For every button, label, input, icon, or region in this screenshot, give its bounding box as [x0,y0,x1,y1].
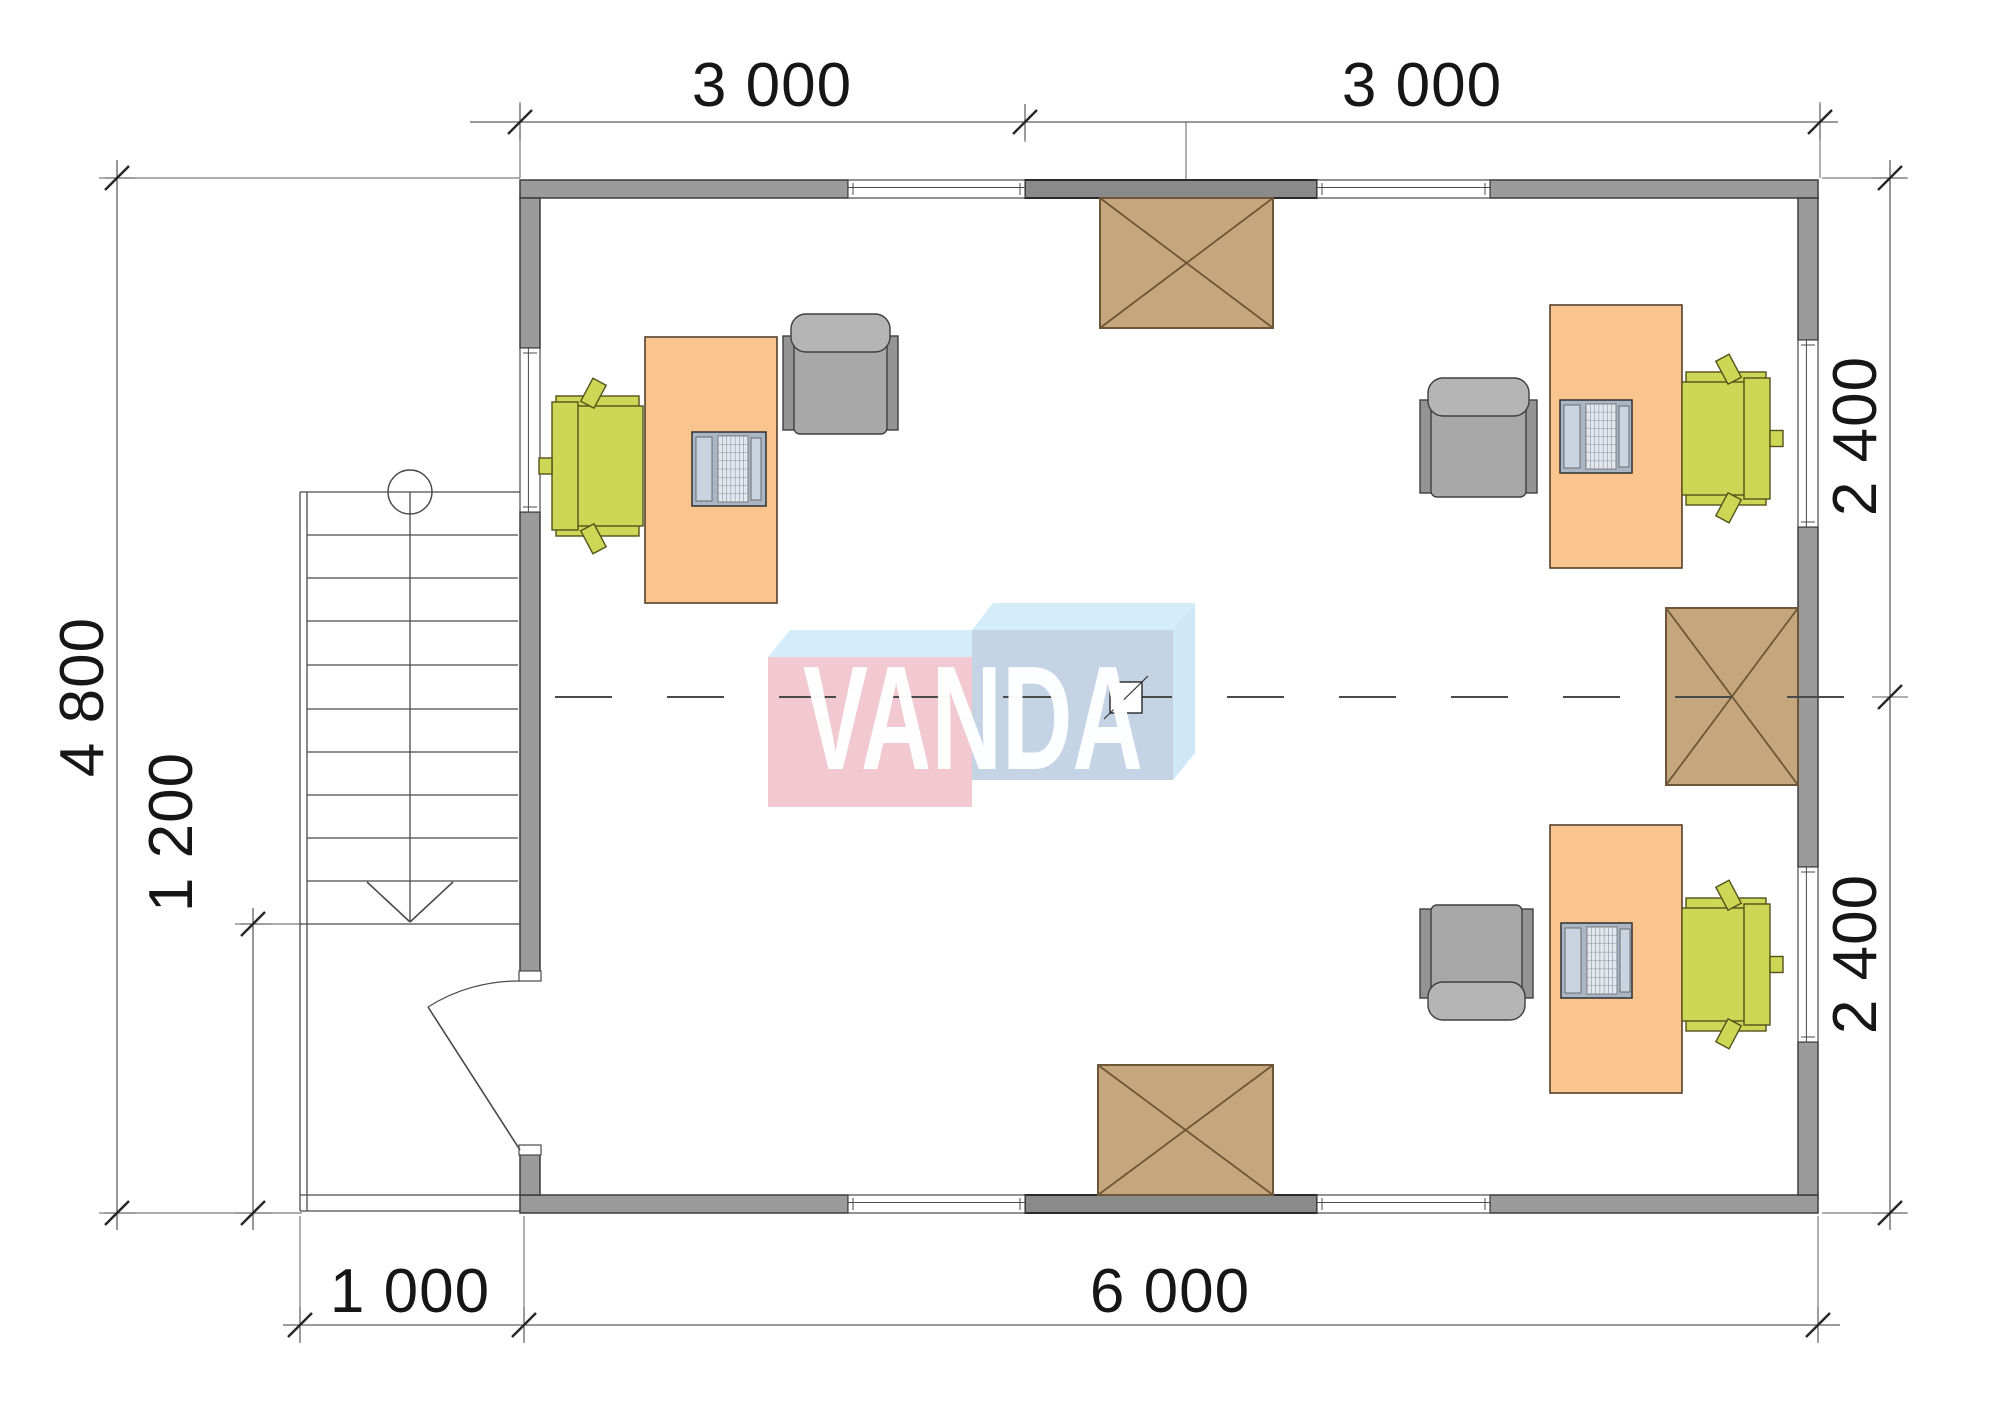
laptop-touchpad [751,438,761,500]
window [1317,180,1490,198]
chair-back-knob [1770,957,1783,973]
wall-segment [1490,1195,1818,1213]
armchair-back [1428,982,1525,1020]
window [1798,340,1818,527]
wall-segment [1490,180,1818,198]
wall-segment [1025,180,1317,198]
laptop-screen [1565,928,1581,993]
armchair-back [1428,378,1529,416]
laptop-touchpad [1619,406,1629,467]
laptop-screen [696,437,712,501]
armchair-back [791,314,890,352]
dim-top-left-bay: 3 000 [652,54,892,118]
laptop-touchpad [1620,929,1630,992]
wall-segment [1798,198,1818,340]
vanda-watermark-text: VANDA [788,646,1158,792]
chair-back-knob [539,458,552,474]
window [848,180,1025,198]
door-jamb [519,971,541,981]
dim-left-total: 4 800 [51,577,115,817]
door-leaf [428,1007,520,1150]
window [1798,867,1818,1042]
floor-plan-canvas: 3 000 3 000 1 000 6 000 4 800 1 200 2 40… [0,0,2000,1410]
door-swing-arc [428,981,520,1007]
chair-back [1744,904,1770,1025]
chair-seat [1682,908,1746,1021]
wall-segment [520,198,540,348]
logo-block-side-face [1173,603,1195,780]
dim-right-lower: 2 400 [1824,834,1888,1074]
window [848,1195,1025,1213]
laptop-screen [1564,405,1580,468]
door-jamb [519,1145,541,1155]
dim-left-porch: 1 200 [140,712,204,952]
logo-block-top-face [972,603,1195,630]
wall-segment [520,512,540,972]
dim-bottom-main: 6 000 [1050,1260,1290,1324]
wall-segment [1025,1195,1317,1213]
wall-segment [520,1195,848,1213]
wall-segment [1798,1042,1818,1195]
dim-bottom-porch: 1 000 [290,1260,530,1324]
wall-segment [520,180,848,198]
window [520,348,540,512]
chair-back [552,402,578,530]
dim-right-upper: 2 400 [1824,316,1888,556]
chair-seat [1682,382,1746,495]
chair-back-knob [1770,431,1783,447]
wall-segment [520,1154,540,1195]
stair-direction-arrow [367,882,410,922]
stair-direction-arrow [410,882,453,922]
chair-seat [576,406,643,526]
chair-back [1744,378,1770,499]
dim-top-right-bay: 3 000 [1302,54,1542,118]
window [1317,1195,1490,1213]
